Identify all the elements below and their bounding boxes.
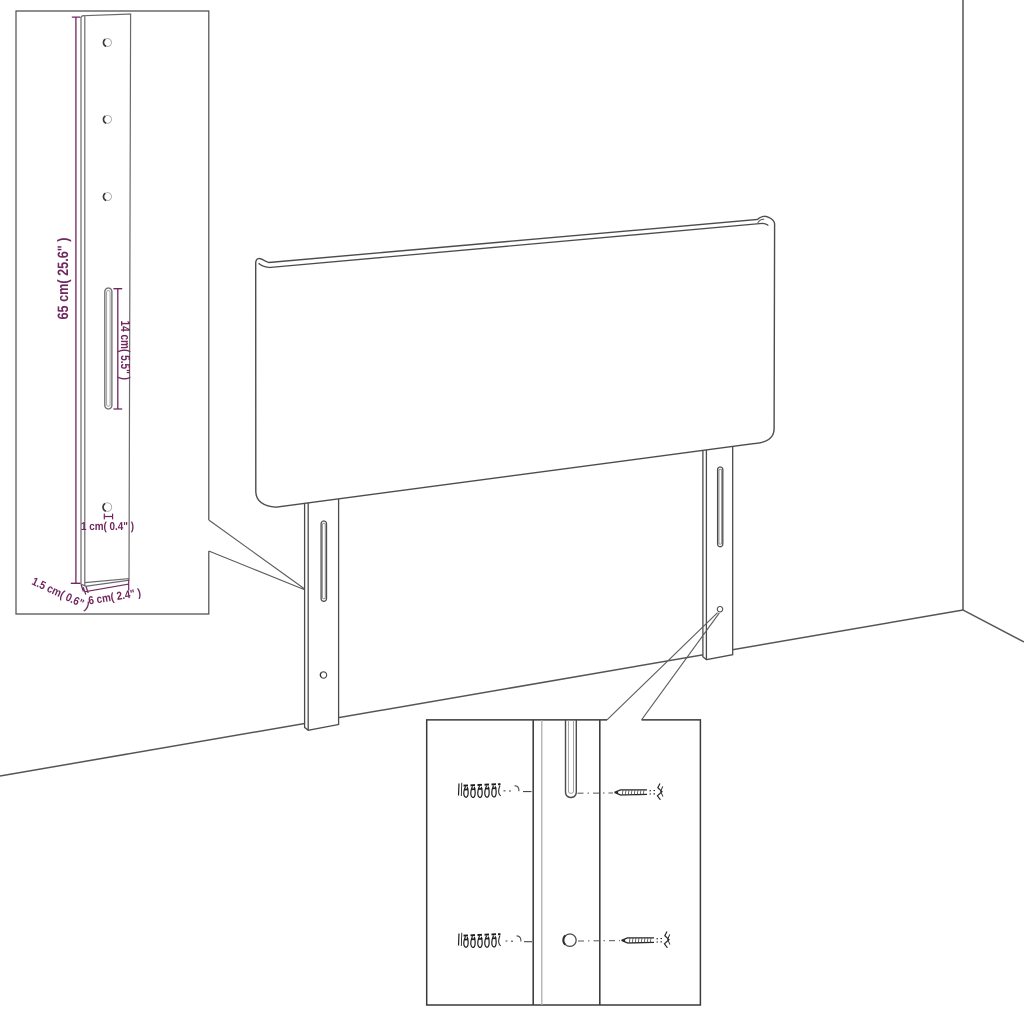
svg-text:1 cm( 0.4" ): 1 cm( 0.4" ) xyxy=(81,521,134,533)
svg-text:65 cm( 25.6" ): 65 cm( 25.6" ) xyxy=(55,238,72,320)
svg-text:14 cm( 5.5" ): 14 cm( 5.5" ) xyxy=(118,321,133,381)
